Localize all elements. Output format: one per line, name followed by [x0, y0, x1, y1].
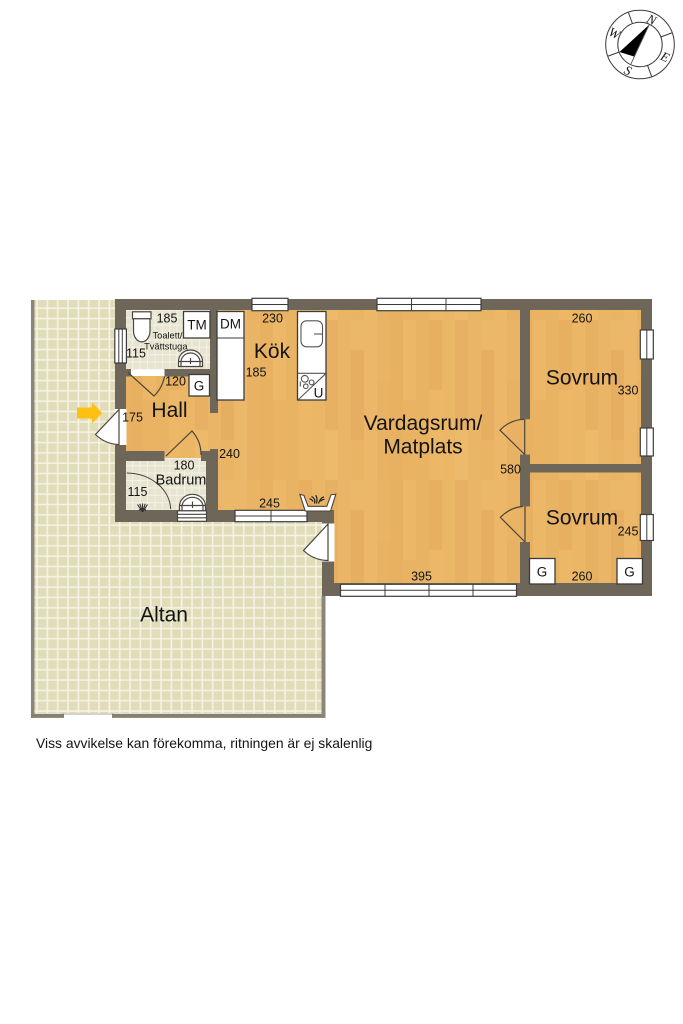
svg-text:Viss avvikelse kan förekomma,: Viss avvikelse kan förekomma, ritningen … — [36, 735, 372, 751]
svg-text:185: 185 — [157, 312, 178, 326]
svg-text:330: 330 — [618, 384, 639, 398]
svg-text:185: 185 — [246, 366, 267, 380]
svg-text:Hall: Hall — [151, 399, 187, 422]
svg-text:G: G — [537, 565, 548, 580]
svg-text:U: U — [314, 386, 324, 401]
svg-text:Vardagsrum/: Vardagsrum/ — [364, 412, 483, 435]
svg-text:240: 240 — [219, 447, 240, 461]
svg-text:260: 260 — [572, 570, 593, 584]
svg-text:G: G — [624, 565, 635, 580]
svg-text:120: 120 — [165, 375, 186, 389]
svg-text:245: 245 — [618, 525, 639, 539]
svg-text:175: 175 — [122, 411, 143, 425]
svg-text:115: 115 — [126, 347, 146, 361]
svg-text:Sovrum: Sovrum — [546, 367, 618, 390]
svg-text:Kök: Kök — [254, 340, 291, 363]
svg-text:TM: TM — [187, 318, 207, 333]
svg-text:Badrum: Badrum — [156, 473, 207, 489]
svg-text:230: 230 — [262, 312, 283, 326]
svg-text:Toalett/: Toalett/ — [153, 331, 183, 341]
svg-text:Sovrum: Sovrum — [546, 507, 618, 530]
svg-text:580: 580 — [500, 463, 521, 477]
svg-text:G: G — [194, 379, 205, 394]
svg-text:245: 245 — [259, 497, 280, 511]
svg-text:DM: DM — [220, 317, 241, 332]
svg-text:180: 180 — [174, 459, 195, 473]
svg-text:Matplats: Matplats — [383, 436, 462, 459]
svg-text:395: 395 — [411, 570, 432, 584]
svg-text:260: 260 — [572, 312, 593, 326]
svg-text:115: 115 — [128, 485, 148, 499]
svg-text:Tvättstuga: Tvättstuga — [144, 342, 188, 352]
svg-text:Altan: Altan — [140, 604, 188, 627]
